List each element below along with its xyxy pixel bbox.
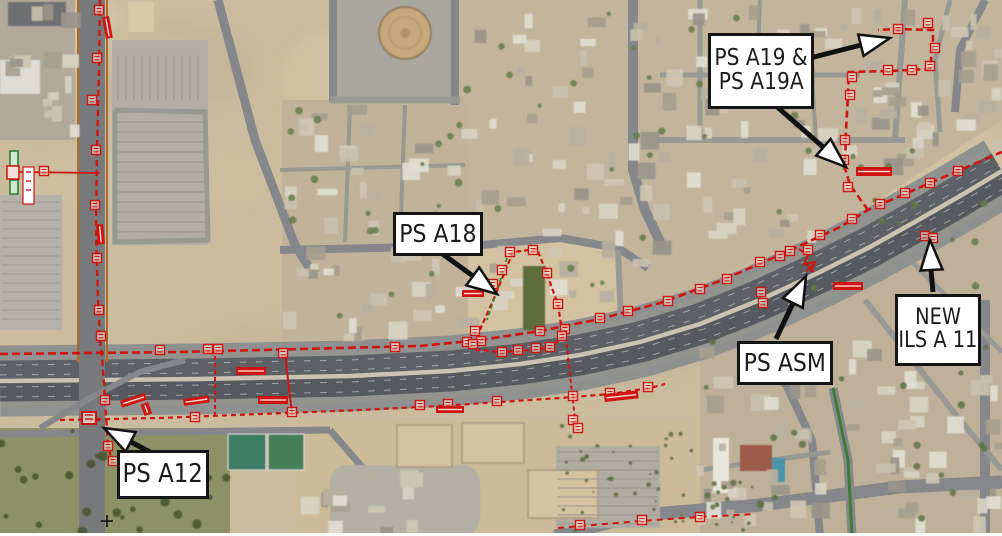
label-text: NEW bbox=[915, 307, 961, 330]
map-label-ps-a19-and-a19a: PS A19 & PS A19A bbox=[708, 33, 814, 109]
label-text: PS A18 bbox=[399, 221, 476, 247]
map-label-ps-a18: PS A18 bbox=[393, 212, 483, 256]
label-text: ILS A 11 bbox=[899, 330, 978, 353]
map-label-ps-a12: PS A12 bbox=[117, 450, 209, 499]
label-text: PS ASM bbox=[744, 350, 826, 376]
aerial-map: PS A19 & PS A19A PS A18 PS ASM NEW ILS A… bbox=[0, 0, 1002, 536]
label-text: PS A12 bbox=[123, 461, 203, 488]
label-text: PS A19A bbox=[719, 71, 804, 95]
map-label-ps-asm: PS ASM bbox=[737, 341, 833, 385]
map-label-new-ils-a11: NEW ILS A 11 bbox=[895, 294, 981, 366]
label-text: PS A19 & bbox=[714, 47, 807, 71]
